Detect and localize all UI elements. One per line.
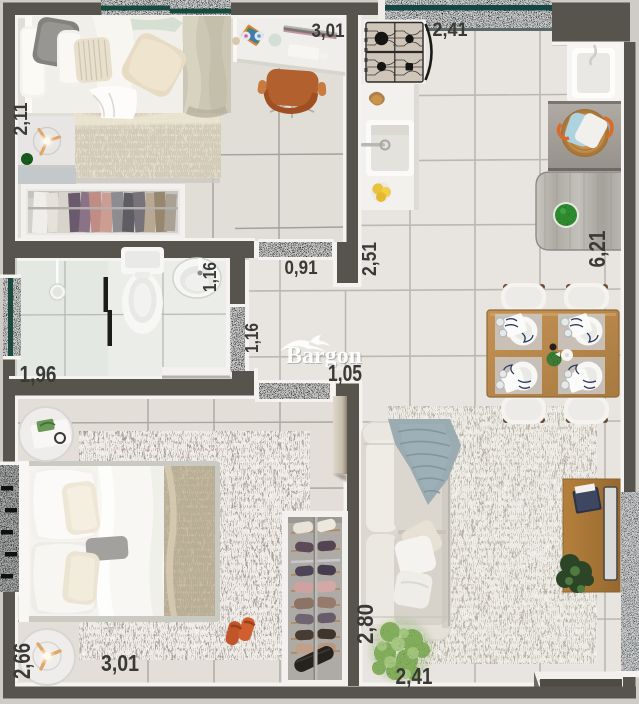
svg-text:2,41: 2,41 xyxy=(433,20,468,41)
svg-text:6,21: 6,21 xyxy=(584,230,610,267)
svg-text:2,41: 2,41 xyxy=(396,663,433,689)
svg-text:1,96: 1,96 xyxy=(20,361,57,387)
svg-text:3,01: 3,01 xyxy=(312,21,345,42)
svg-text:2,51: 2,51 xyxy=(359,242,381,276)
svg-text:1,05: 1,05 xyxy=(328,360,362,386)
svg-text:3,01: 3,01 xyxy=(101,650,139,676)
svg-text:2,66: 2,66 xyxy=(9,643,36,679)
svg-text:0,91: 0,91 xyxy=(285,258,318,279)
svg-text:2,80: 2,80 xyxy=(352,604,378,644)
svg-text:1,16: 1,16 xyxy=(200,262,220,292)
svg-text:2,11: 2,11 xyxy=(11,102,32,135)
svg-text:1,16: 1,16 xyxy=(242,323,262,353)
